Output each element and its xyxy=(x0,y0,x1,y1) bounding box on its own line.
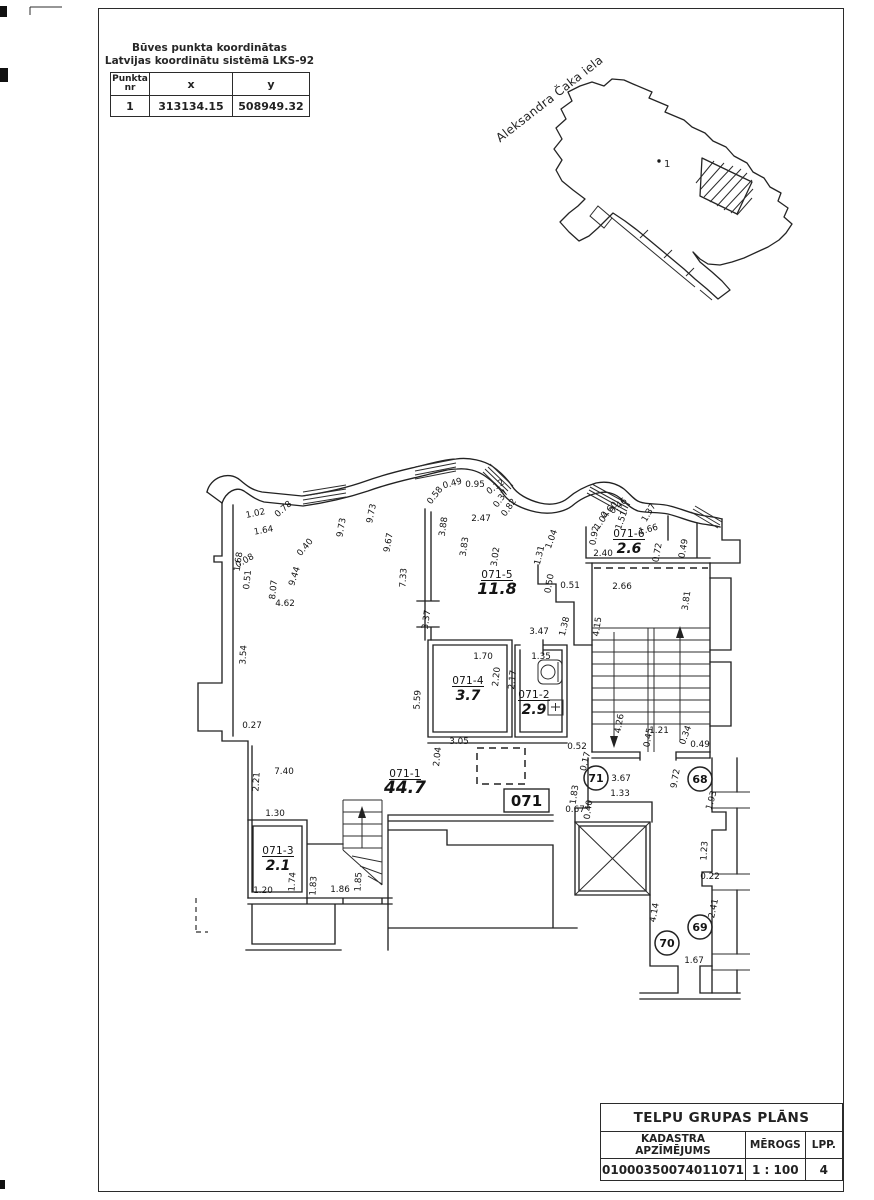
dimension-label: 1.35 xyxy=(531,652,551,662)
room-area-label: 3.7 xyxy=(456,688,481,704)
premises-circle-mark: 68 xyxy=(688,767,712,791)
room-id-label: 071-3 xyxy=(262,845,294,857)
cadastre-number: 01000350074011071 xyxy=(601,1159,746,1181)
scanned-floor-plan-sheet: { "coord_table": { "title_line1": "Būves… xyxy=(0,0,874,1200)
premises-circle-number: 71 xyxy=(588,772,603,785)
dimension-label: 0.40 xyxy=(295,537,316,559)
dimension-label: 0.17 xyxy=(579,751,593,772)
cadastre-label: KADASTRA APZĪMĒJUMS xyxy=(601,1132,746,1159)
dimension-label: 7.40 xyxy=(274,767,294,777)
dimension-label: 1.83 xyxy=(308,876,319,896)
premises-circle-number: 69 xyxy=(692,921,707,934)
dimension-label: 4.15 xyxy=(592,616,605,637)
dimension-label: 1.74 xyxy=(287,871,298,892)
dimension-label: 0.49 xyxy=(690,740,710,750)
dashed-opening xyxy=(477,748,525,784)
title-block: TELPU GRUPAS PLĀNS KADASTRA APZĪMĒJUMS M… xyxy=(600,1103,843,1181)
sheet-title: TELPU GRUPAS PLĀNS xyxy=(601,1104,843,1132)
dimension-label: 1.23 xyxy=(699,841,710,861)
site-hatched-area xyxy=(696,158,753,215)
site-building-outline xyxy=(554,79,792,299)
dimension-label: 9.67 xyxy=(382,532,395,553)
dimension-label: 1.21 xyxy=(649,726,669,736)
dimension-label: 0.49 xyxy=(677,538,690,559)
dimension-label: 8.07 xyxy=(268,580,280,601)
dimension-label: 1.04 xyxy=(544,528,560,550)
dimension-label: 0.40 xyxy=(583,799,596,820)
dimension-label: 4.26 xyxy=(613,713,626,734)
dimension-label: 0.72 xyxy=(651,542,664,563)
dimension-label: 1.38 xyxy=(558,616,572,637)
dimension-label: 0.27 xyxy=(242,721,262,731)
premises-circle-mark: 69 xyxy=(688,915,712,939)
page-label: LPP. xyxy=(805,1132,842,1159)
floor-plan-drawing: 1 Aleksandra Čaka iela xyxy=(0,0,874,1200)
dimension-label: 2.47 xyxy=(471,514,491,524)
room-area-label: 11.8 xyxy=(477,579,516,598)
dimension-label: 3.88 xyxy=(438,516,451,537)
dimension-label: 1.30 xyxy=(265,809,285,819)
room-area-label: 2.1 xyxy=(266,858,291,874)
dimension-label: 1.86 xyxy=(330,885,350,895)
dimension-label: 1.64 xyxy=(253,524,274,537)
dimension-label: 3.54 xyxy=(238,644,249,665)
floor-plan: 071 1.020.781.641.688.079.440.409.739.73… xyxy=(196,458,750,999)
dimension-label: 3.05 xyxy=(449,737,469,747)
site-plan: 1 Aleksandra Čaka iela xyxy=(493,52,792,300)
toilet-symbol xyxy=(538,660,562,684)
dimension-label: 2.41 xyxy=(707,898,721,919)
dimension-label: 3.81 xyxy=(681,590,694,611)
dimension-label: 1.20 xyxy=(253,886,273,896)
dimension-label: 3.83 xyxy=(459,536,472,557)
dimension-label: 9.44 xyxy=(287,565,303,587)
dimension-label: 1.83 xyxy=(569,784,582,805)
dimension-label: 9.72 xyxy=(669,768,682,789)
dimension-label: 9.73 xyxy=(365,503,379,524)
small-stairs xyxy=(343,800,382,885)
elevator-shaft xyxy=(575,822,650,895)
dimension-label: 3.02 xyxy=(490,546,503,567)
dimension-label: 3.47 xyxy=(529,627,549,637)
site-point-label: 1 xyxy=(664,159,670,170)
room-id-label: 071-2 xyxy=(518,689,550,701)
lower-centre-room-walls xyxy=(388,815,577,950)
dimension-label: 9.73 xyxy=(335,517,348,538)
south-west-walls xyxy=(246,898,392,950)
room-id-label: 071-6 xyxy=(613,528,645,540)
group-number-label: 071 xyxy=(511,792,542,810)
scale-label: MĒROGS xyxy=(745,1132,805,1159)
dimension-label: 2.17 xyxy=(507,670,519,691)
dimension-label: 2.04 xyxy=(432,746,444,767)
page-value: 4 xyxy=(805,1159,842,1181)
dimension-label: 1.70 xyxy=(473,652,493,662)
dimension-label: 1.02 xyxy=(245,507,266,521)
premises-circle-number: 70 xyxy=(659,937,675,950)
premises-circle-mark: 70 xyxy=(655,931,679,955)
dimension-label: 2.21 xyxy=(251,772,262,792)
dimension-label: 0.58 xyxy=(425,485,445,507)
scale-value: 1 : 100 xyxy=(745,1159,805,1181)
dimension-label: 7.33 xyxy=(398,568,409,588)
dimension-label: 2.40 xyxy=(593,549,613,559)
street-name-label: Aleksandra Čaka iela xyxy=(493,52,606,145)
room-id-label: 071-4 xyxy=(452,675,484,687)
dimension-label: 4.14 xyxy=(648,902,661,923)
room-area-label: 44.7 xyxy=(383,778,426,798)
dimension-label: 0.22 xyxy=(700,872,720,882)
dimension-label: 0.51 xyxy=(242,570,254,591)
dimension-label: 0.50 xyxy=(543,573,556,594)
room-area-label: 2.9 xyxy=(522,702,547,718)
room-area-label: 2.6 xyxy=(617,541,642,557)
dimension-label: 0.95 xyxy=(465,480,485,490)
premises-circle-mark: 71 xyxy=(584,766,608,790)
dimension-label: 5.59 xyxy=(412,690,423,710)
dimension-label: 1.85 xyxy=(353,872,364,892)
sink-symbol xyxy=(548,700,563,715)
dimension-label: 3.67 xyxy=(611,774,631,784)
dimension-label: 1.33 xyxy=(610,789,630,799)
dimension-label: 4.62 xyxy=(275,599,295,609)
dimension-label: 1.67 xyxy=(684,956,704,966)
dimension-label: 2.66 xyxy=(612,582,632,592)
dimension-label: 2.20 xyxy=(491,666,503,687)
site-point-marker xyxy=(657,159,660,162)
premises-circle-number: 68 xyxy=(692,773,707,786)
dimension-label: 0.52 xyxy=(567,742,587,752)
dimension-label: 0.67 xyxy=(565,805,585,815)
dimension-label: 0.49 xyxy=(442,477,464,492)
dimension-label: 0.78 xyxy=(273,499,294,520)
dimension-label: 0.51 xyxy=(560,581,580,591)
scan-artifacts xyxy=(0,6,62,1189)
dimension-label: 1.31 xyxy=(533,545,547,566)
